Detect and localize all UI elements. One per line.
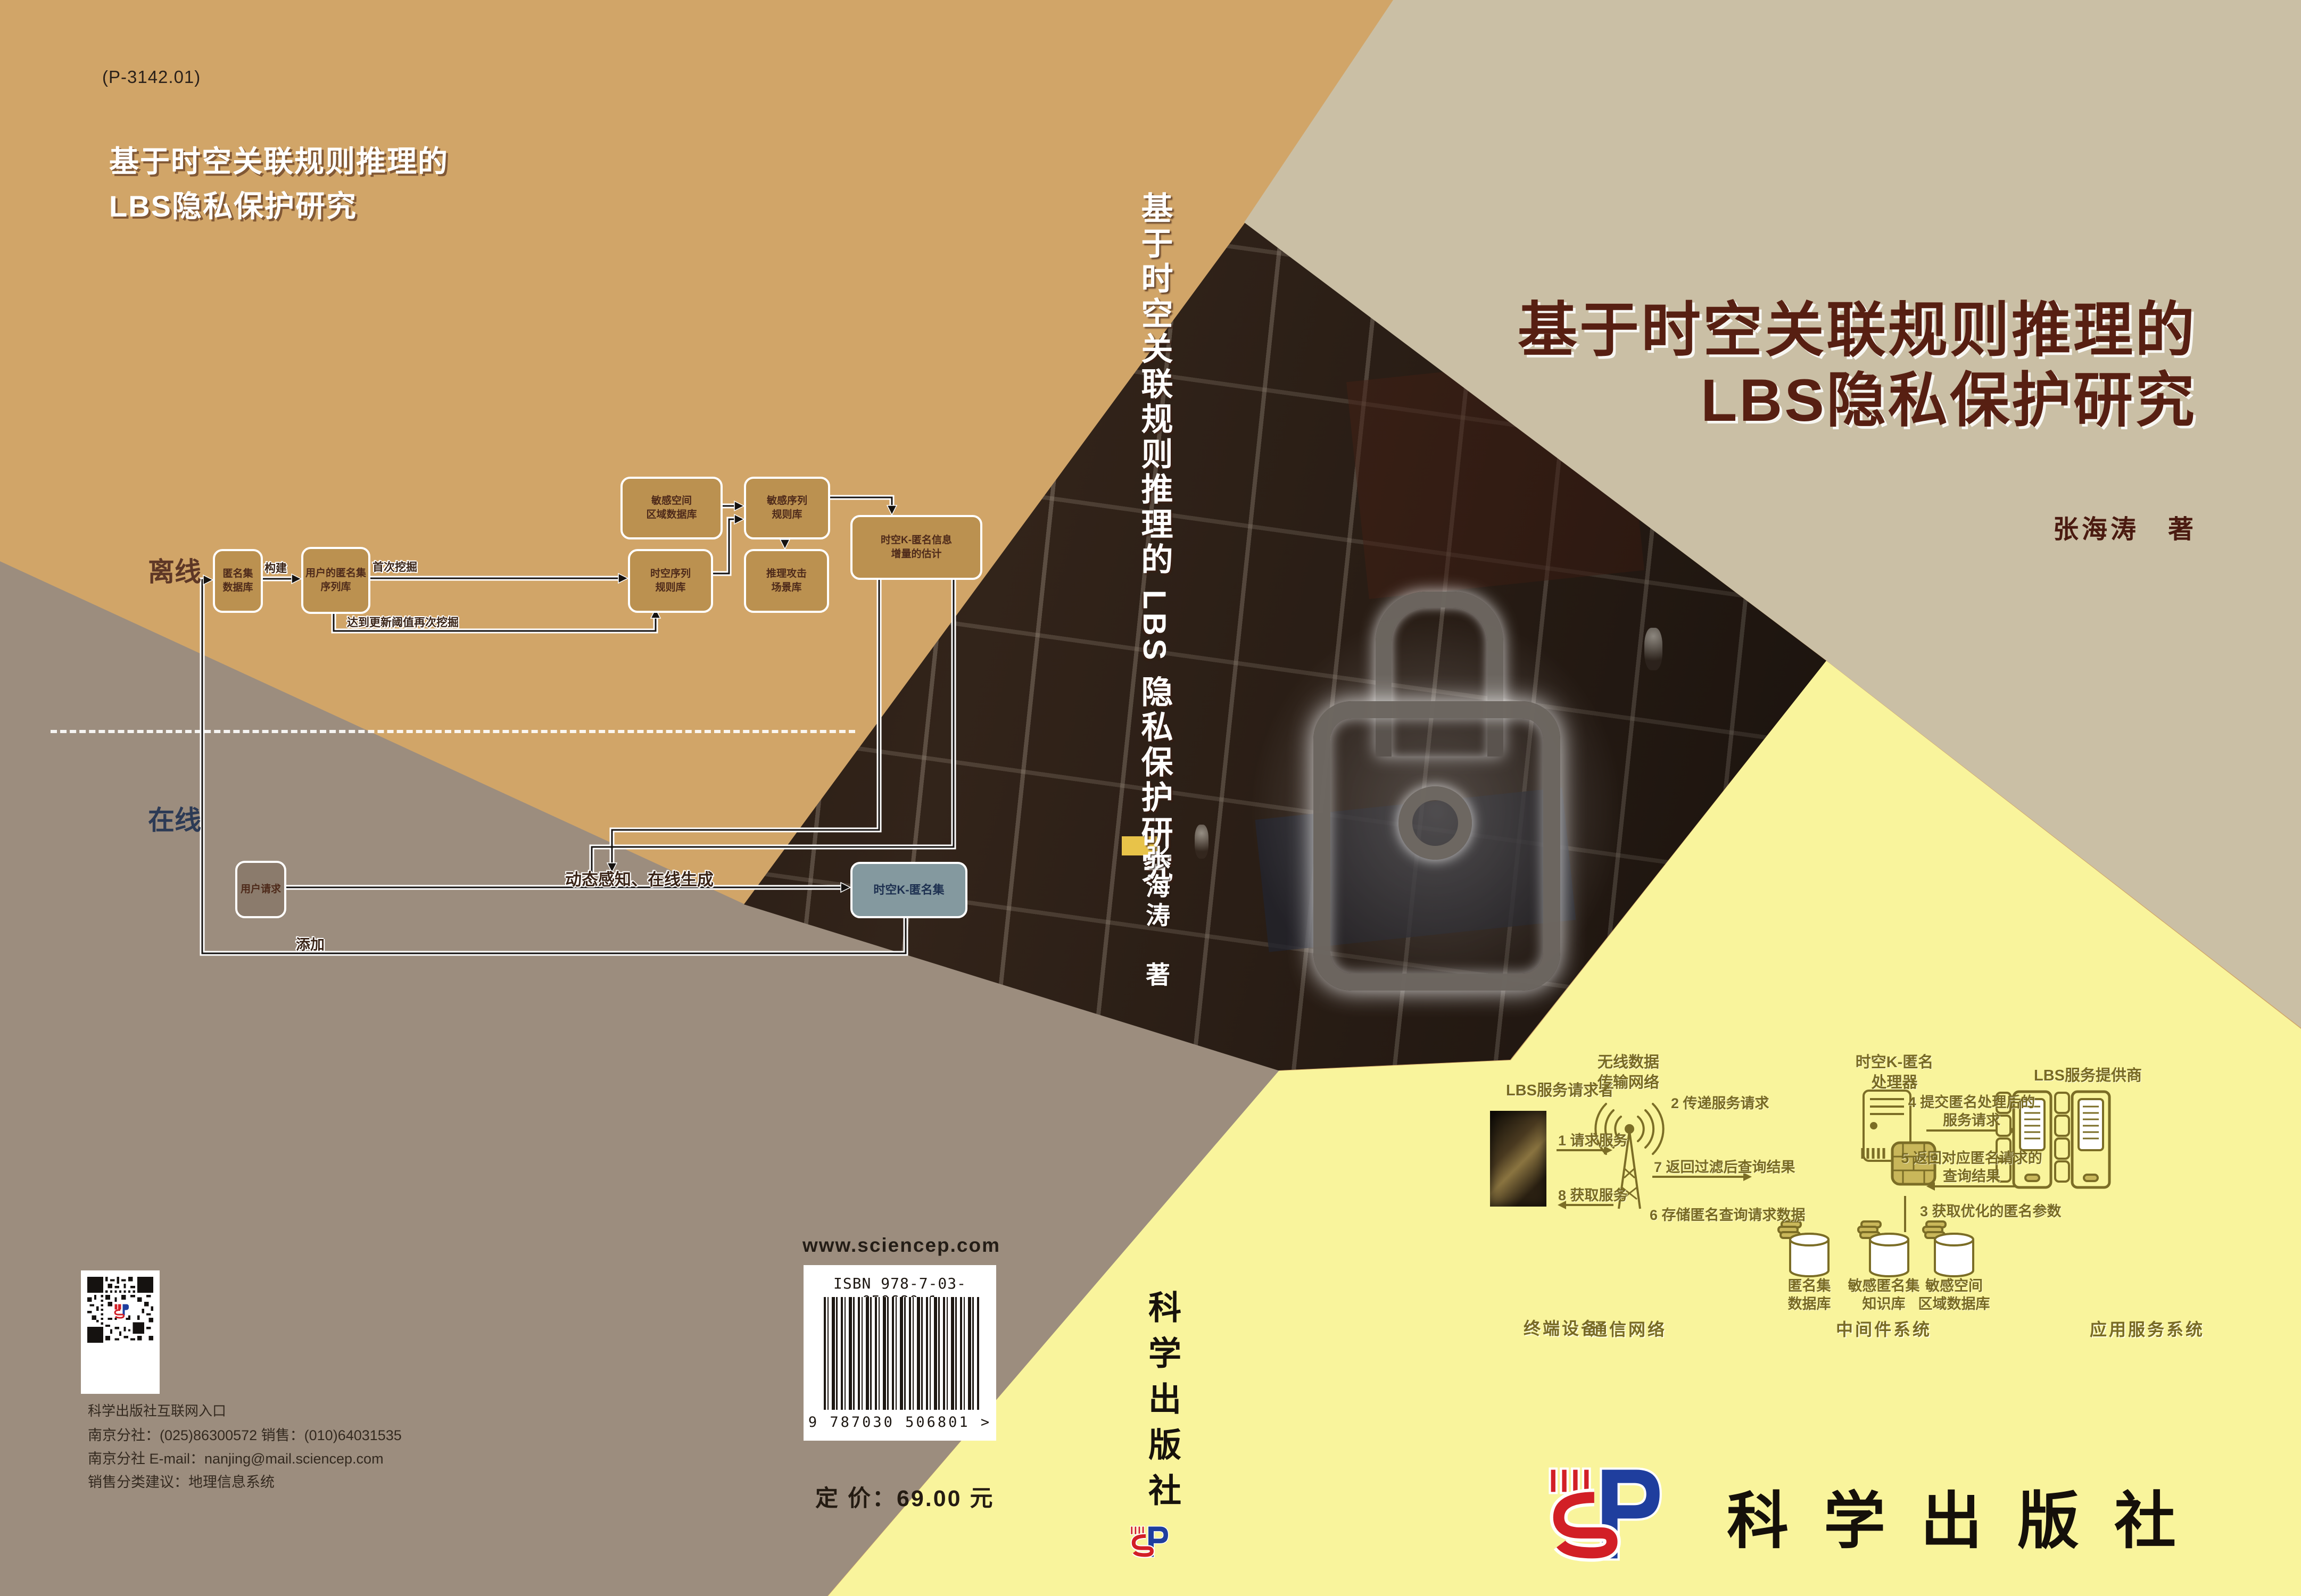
flow-label-build: 构建 [264,560,287,576]
publisher-name-front: 科学出版社 [1727,1471,2211,1560]
diagram-tier-middleware: 中间件系统 [1831,1316,1937,1341]
flow-box-kanonymity-increment: 时空K-匿名信息增量的估计 [850,515,982,580]
flow-box-anonymity-set-db: 匿名集数据库 [213,549,263,613]
flow-box-spatiotemporal-rule-db: 时空序列规则库 [628,549,713,613]
spine-title: 基于时空关联规则推理的 LBS 隐私保护研究 [1131,192,1178,886]
diagram-step7: 7 返回过滤后查询结果 [1654,1156,1795,1176]
barcode-card: ISBN 978-7-03-050680-1 9 787030 506801 > [804,1265,996,1441]
flow-box-kanonymity-set: 时空K-匿名集 [850,862,967,918]
diagram-step3: 3 获取优化的匿名参数 [1920,1200,2062,1220]
offline-section-label: 离线 [148,551,201,589]
padlock-keyhole-icon [1398,786,1472,860]
back-title: 基于时空关联规则推理的 LBS隐私保护研究 [109,139,449,229]
front-title: 基于时空关联规则推理的 LBS隐私保护研究 [1518,295,2197,436]
barcode-bars [824,1297,981,1410]
flow-label-add: 添加 [296,933,325,954]
driver-photo-thumbnail [1490,1111,1546,1207]
barcode-digits: 9 787030 506801 > [804,1414,996,1431]
front-title-line1: 基于时空关联规则推理的 [1518,295,2197,365]
diagram-step5: 5 返回对应匿名请求的查询结果 [1897,1149,2046,1185]
publisher-website: www.sciencep.com [802,1234,997,1257]
contact-phone: 南京分社：(025)86300572 销售：(010)64031535 [88,1424,402,1444]
flow-label-threshold-remine: 达到更新阈值再次挖掘 [347,614,459,630]
qr-card [81,1270,160,1394]
diagram-network-label: 无线数据传输网络 [1588,1052,1668,1093]
back-title-line1: 基于时空关联规则推理的 [109,139,449,184]
front-title-line2: LBS隐私保护研究 [1518,365,2197,436]
diagram-step8: 8 获取服务 [1558,1184,1628,1204]
diagram-tier-appservice: 应用服务系统 [2081,1316,2214,1341]
diagram-step2: 2 传递服务请求 [1671,1092,1769,1112]
diagram-db3-label: 敏感空间区域数据库 [1901,1277,2007,1313]
book-cover-spread: (P-3142.01) 基于时空关联规则推理的 LBS隐私保护研究 离线 在线 [0,0,2301,1596]
flow-box-sensitive-area-db: 敏感空间区域数据库 [620,477,723,539]
diagram-provider-label: LBS服务提供商 [2034,1063,2142,1085]
diagram-tier-network: 通信网络 [1575,1316,1682,1341]
qr-caption: 科学出版社互联网入口 [88,1400,226,1420]
flow-box-user-request: 用户请求 [235,861,286,918]
diagram-step4: 4 提交匿名处理后的服务请求 [1900,1093,2043,1129]
print-code: (P-3142.01) [102,67,201,87]
back-title-line2: LBS隐私保护研究 [109,184,449,229]
contact-category: 销售分类建议：地理信息系统 [88,1470,275,1491]
science-press-logo-front [1543,1464,1676,1564]
front-author: 张海涛 著 [2053,508,2197,545]
flow-box-user-sequence-db: 用户的匿名集序列库 [301,547,370,614]
online-section-label: 在线 [148,799,201,837]
spine-author-suffix: 著 [1139,962,1174,991]
spine-author: 张海涛 [1139,845,1174,931]
science-press-logo-spine [1128,1525,1174,1559]
diagram-step1: 1 请求服务 [1558,1129,1628,1150]
qr-code [87,1277,153,1343]
price: 定 价：69.00 元 [815,1480,995,1513]
flow-box-attack-scenario-db: 推理攻击场景库 [744,549,829,613]
flow-label-dynamic-online: 动态感知、在线生成 [565,866,714,890]
flow-label-first-mining: 首次挖掘 [373,559,417,575]
diagram-step6: 6 存储匿名查询请求数据 [1650,1203,1806,1224]
spine-publisher: 科学出版社 [1138,1290,1186,1519]
offline-online-divider [51,730,855,733]
diagram-processor-label: 时空K-匿名处理器 [1852,1052,1937,1093]
contact-email: 南京分社 E-mail：nanjing@mail.sciencep.com [88,1447,384,1468]
flow-box-sensitive-rule-db: 敏感序列规则库 [744,477,830,539]
